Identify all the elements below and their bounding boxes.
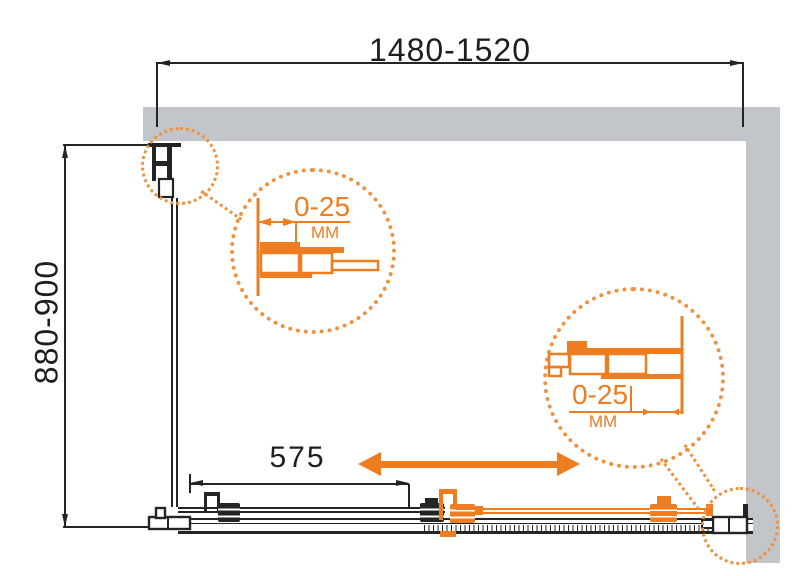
- detail-dim-tick: [643, 409, 650, 416]
- fixed-panel-roller-left: [218, 503, 240, 522]
- width-dimension-line: [157, 62, 743, 64]
- depth-dim-arrow-top: [62, 145, 68, 158]
- detail-unit-label: MM: [589, 412, 617, 431]
- depth-dimension-label: 880-900: [29, 260, 66, 384]
- corner-tab: [156, 508, 165, 518]
- detail-value-label: 0-25: [294, 191, 350, 222]
- door-dim-arrow-left: [190, 480, 203, 486]
- sliding-door-roller-tab: [657, 496, 671, 504]
- detail-dim-tick: [672, 409, 679, 416]
- door-dimension-label: 575: [240, 441, 355, 475]
- door-dim-leg: [408, 484, 410, 507]
- wall-top: [143, 107, 780, 141]
- door-dimension-line: [190, 483, 409, 485]
- side-glass-panel: [171, 198, 178, 507]
- detail-profile-glass: [332, 261, 378, 270]
- adjustment-detail-top: 0-25 MM: [230, 178, 390, 318]
- detail-profile-glass: [549, 354, 569, 367]
- detail-profile-glass: [549, 367, 561, 376]
- sliding-door-guide: [440, 531, 456, 537]
- sliding-door-roller-right: [650, 504, 677, 522]
- detail-profile-bar: [567, 341, 587, 348]
- slide-arrow-shaft: [377, 461, 561, 468]
- adjustment-detail-bottom: 0-25 MM: [543, 300, 703, 440]
- detail-value-label: 0-25: [572, 379, 628, 410]
- detail-profile-box: [301, 253, 332, 273]
- callout-connector-bottom-a: [683, 444, 715, 492]
- fixed-panel-bracket-leg: [204, 496, 207, 513]
- shower-enclosure-installation-drawing: 1480-1520 880-900: [0, 0, 800, 576]
- detail-profile-bar: [260, 242, 300, 247]
- callout-circle-small-bottom: [701, 487, 779, 565]
- detail-profile-box: [261, 253, 299, 273]
- sliding-door-bracket-leg: [439, 494, 443, 520]
- slide-direction-arrow: [358, 452, 580, 476]
- detail-dim-arrow-left: [258, 218, 271, 226]
- width-ext-line-left: [156, 62, 158, 127]
- corner-profile-bottom-left: [144, 500, 202, 536]
- detail-profile-box: [570, 354, 606, 374]
- detail-profile-box: [608, 354, 646, 374]
- depth-dimension-line: [64, 145, 66, 527]
- width-ext-line-right: [742, 62, 744, 127]
- detail-profile-bar: [260, 273, 312, 278]
- track-hatch: [424, 525, 744, 532]
- detail-unit-label: MM: [311, 223, 339, 242]
- width-dim-arrow-left: [157, 60, 170, 66]
